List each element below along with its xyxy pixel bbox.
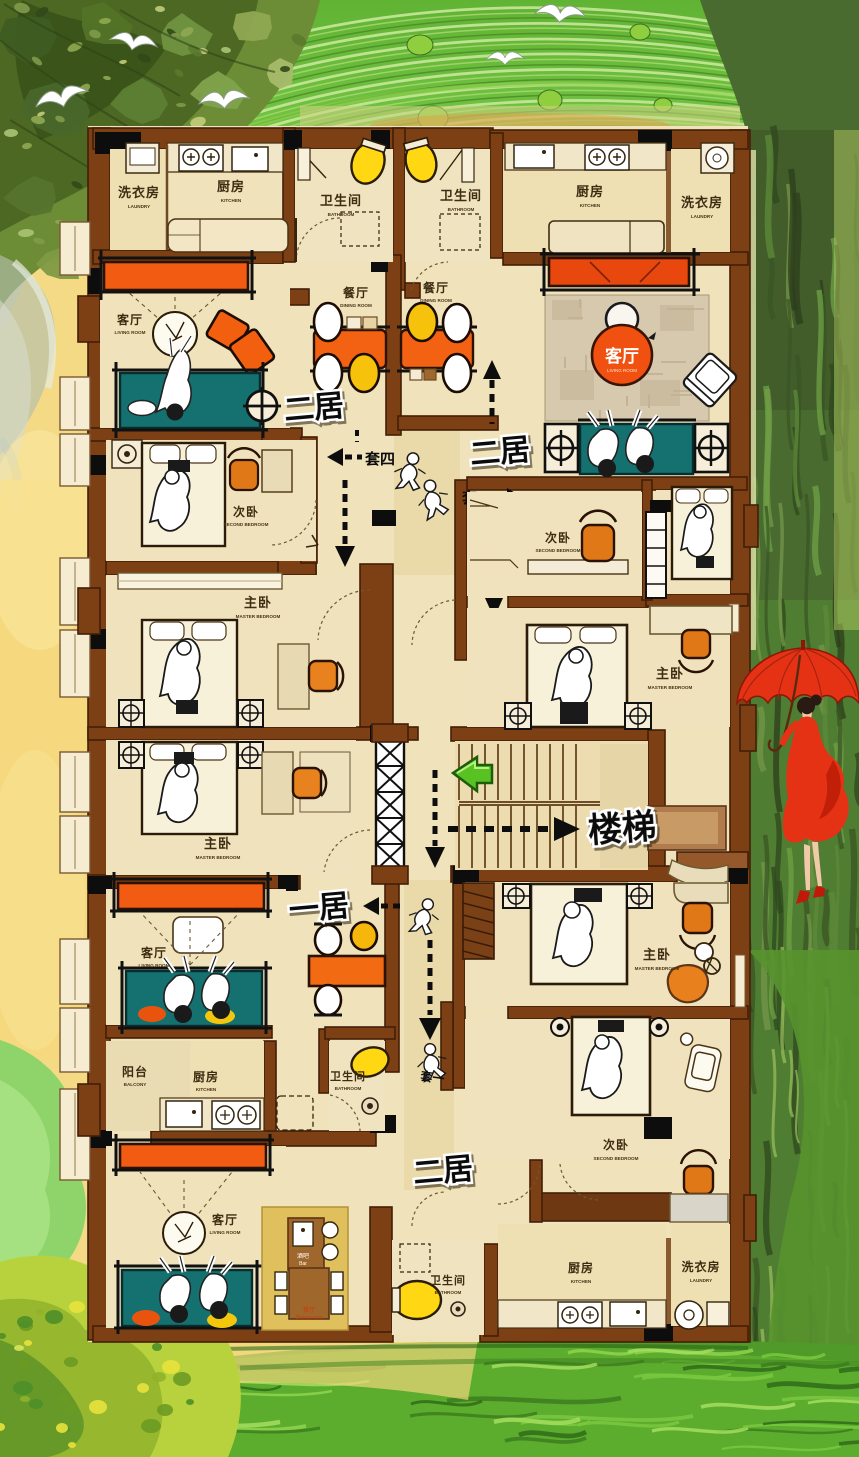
svg-text:一居: 一居 [288, 889, 351, 927]
svg-text:Bar: Bar [299, 1261, 307, 1267]
svg-text:KITCHEN: KITCHEN [221, 198, 242, 203]
svg-text:客厅: 客厅 [211, 1212, 238, 1227]
svg-text:SECOND BEDROOM: SECOND BEDROOM [224, 522, 269, 527]
svg-text:卫生间: 卫生间 [330, 1069, 366, 1083]
svg-text:DINING ROOM: DINING ROOM [420, 298, 452, 303]
svg-text:酒吧: 酒吧 [297, 1252, 309, 1260]
svg-text:MASTER BEDROOM: MASTER BEDROOM [635, 966, 680, 971]
svg-text:BATHROOM: BATHROOM [335, 1086, 362, 1091]
svg-text:LIVING ROOM: LIVING ROOM [607, 368, 637, 373]
svg-text:主卧: 主卧 [643, 947, 671, 962]
svg-text:客厅: 客厅 [116, 312, 143, 327]
svg-text:主卧: 主卧 [656, 666, 684, 681]
svg-text:次卧: 次卧 [545, 530, 571, 545]
svg-text:客厅: 客厅 [604, 346, 639, 366]
svg-text:Dining room: Dining room [296, 1315, 323, 1321]
svg-text:主卧: 主卧 [204, 836, 232, 851]
svg-text:KITCHEN: KITCHEN [196, 1087, 217, 1092]
svg-text:MASTER BEDROOM: MASTER BEDROOM [648, 685, 693, 690]
svg-text:厨房: 厨房 [193, 1069, 219, 1084]
svg-text:BATHROOM: BATHROOM [328, 212, 355, 217]
svg-text:BATHROOM: BATHROOM [448, 207, 475, 212]
svg-text:二居: 二居 [469, 433, 532, 471]
svg-text:MASTER BEDROOM: MASTER BEDROOM [236, 614, 281, 619]
svg-text:LIVING ROOM: LIVING ROOM [210, 1230, 241, 1235]
svg-text:二居: 二居 [412, 1152, 475, 1190]
svg-text:LIVING ROOM: LIVING ROOM [115, 330, 146, 335]
svg-text:卫生间: 卫生间 [430, 1273, 466, 1287]
svg-text:套四: 套四 [364, 450, 395, 468]
svg-text:餐厅: 餐厅 [343, 285, 369, 300]
svg-text:餐厅: 餐厅 [423, 280, 449, 295]
svg-text:LAUNDRY: LAUNDRY [691, 214, 713, 219]
svg-text:LIVING ROOM: LIVING ROOM [139, 963, 170, 968]
svg-text:MASTER BEDROOM: MASTER BEDROOM [196, 855, 241, 860]
svg-text:KITCHEN: KITCHEN [571, 1279, 592, 1284]
svg-text:洗衣房: 洗衣房 [681, 1259, 720, 1274]
svg-text:餐厅: 餐厅 [303, 1306, 315, 1314]
svg-text:楼梯: 楼梯 [587, 808, 657, 851]
svg-text:主卧: 主卧 [244, 595, 272, 610]
svg-text:阳台: 阳台 [122, 1064, 148, 1079]
svg-text:厨房: 厨房 [576, 184, 604, 199]
svg-text:KITCHEN: KITCHEN [580, 203, 601, 208]
svg-text:厨房: 厨房 [568, 1260, 594, 1275]
svg-text:洗衣房: 洗衣房 [118, 185, 160, 200]
svg-text:SECOND BEDROOM: SECOND BEDROOM [594, 1156, 639, 1161]
svg-text:卫生间: 卫生间 [440, 188, 482, 203]
svg-text:卫生间: 卫生间 [320, 193, 362, 208]
svg-text:LAUNDRY: LAUNDRY [690, 1278, 712, 1283]
svg-text:二居: 二居 [283, 389, 346, 427]
svg-text:次卧: 次卧 [233, 504, 259, 519]
svg-text:DINING ROOM: DINING ROOM [340, 303, 372, 308]
svg-text:厨房: 厨房 [217, 179, 245, 194]
svg-text:BALCONY: BALCONY [124, 1082, 147, 1087]
svg-text:LAUNDRY: LAUNDRY [128, 204, 150, 209]
svg-text:次卧: 次卧 [603, 1137, 629, 1152]
svg-text:SECOND BEDROOM: SECOND BEDROOM [536, 548, 581, 553]
svg-text:BATHROOM: BATHROOM [435, 1290, 462, 1295]
svg-text:客厅: 客厅 [140, 945, 167, 960]
svg-text:洗衣房: 洗衣房 [681, 195, 723, 210]
